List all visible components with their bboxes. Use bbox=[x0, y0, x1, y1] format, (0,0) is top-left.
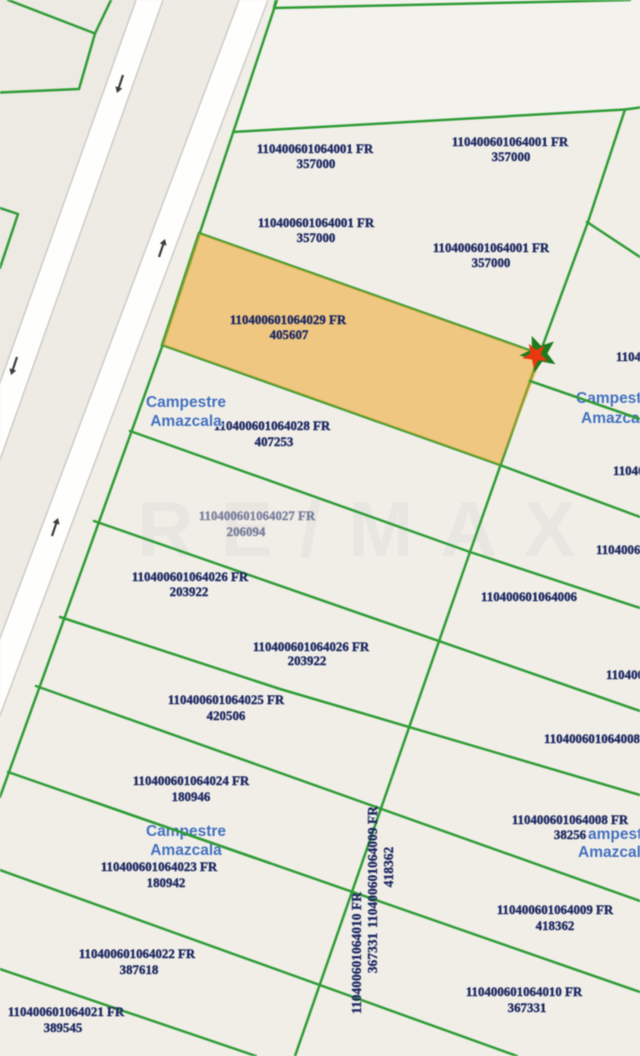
svg-text:Amazcala: Amazcala bbox=[578, 844, 640, 861]
svg-text:110400601064006: 110400601064006 bbox=[481, 590, 578, 604]
svg-text:110400601064021 FR: 110400601064021 FR bbox=[8, 1005, 125, 1019]
svg-text:203922: 203922 bbox=[170, 585, 209, 599]
svg-text:110400601064001 FR: 110400601064001 FR bbox=[257, 142, 374, 156]
svg-text:1104006010: 1104006010 bbox=[606, 668, 640, 682]
svg-text:418362: 418362 bbox=[536, 919, 575, 933]
svg-text:110400601064025 FR: 110400601064025 FR bbox=[168, 693, 285, 707]
svg-text:389545: 389545 bbox=[44, 1021, 83, 1035]
svg-text:387618: 387618 bbox=[120, 963, 159, 977]
svg-text:38256: 38256 bbox=[554, 828, 587, 842]
svg-text:110400601064008 FR: 110400601064008 FR bbox=[544, 732, 640, 746]
svg-text:110400601064001 FR: 110400601064001 FR bbox=[258, 216, 375, 230]
svg-text:110400601064001 FR: 110400601064001 FR bbox=[452, 135, 569, 149]
svg-text:367331: 367331 bbox=[508, 1001, 547, 1015]
svg-text:405607: 405607 bbox=[270, 328, 309, 342]
svg-text:357000: 357000 bbox=[472, 256, 511, 270]
svg-text:Campestre: Campestre bbox=[146, 394, 226, 411]
svg-text:110400601064023 FR: 110400601064023 FR bbox=[101, 860, 218, 874]
svg-text:Campestre: Campestre bbox=[576, 390, 640, 407]
svg-text:110400601064: 110400601064 bbox=[596, 543, 640, 557]
svg-text:110400601064010 FR: 110400601064010 FR bbox=[349, 892, 364, 1014]
svg-text:420506: 420506 bbox=[207, 709, 246, 723]
svg-text:180946: 180946 bbox=[172, 790, 211, 804]
svg-text:367331: 367331 bbox=[365, 933, 380, 974]
svg-text:357000: 357000 bbox=[297, 231, 336, 245]
svg-text:110400601064009 FR: 110400601064009 FR bbox=[365, 806, 380, 928]
svg-text:11040060106: 11040060106 bbox=[613, 464, 640, 478]
svg-text:110400601064026 FR: 110400601064026 FR bbox=[253, 640, 370, 654]
svg-text:110400601064027 FR: 110400601064027 FR bbox=[199, 509, 316, 523]
svg-text:110400601064028 FR: 110400601064028 FR bbox=[214, 419, 331, 433]
svg-text:Amazcala: Amazcala bbox=[581, 410, 640, 427]
svg-text:418362: 418362 bbox=[381, 847, 396, 888]
svg-text:110400601064001 FR: 110400601064001 FR bbox=[433, 241, 550, 255]
svg-text:ampestre: ampestre bbox=[588, 826, 640, 843]
svg-text:110400601064029 FR: 110400601064029 FR bbox=[230, 313, 347, 327]
svg-text:110400601064026 FR: 110400601064026 FR bbox=[132, 570, 249, 584]
svg-text:Amazcala: Amazcala bbox=[150, 842, 222, 859]
svg-text:110400601064024 FR: 110400601064024 FR bbox=[133, 774, 250, 788]
svg-text:203922: 203922 bbox=[288, 654, 327, 668]
svg-text:110400601064008 FR: 110400601064008 FR bbox=[512, 813, 629, 827]
svg-text:206094: 206094 bbox=[227, 525, 266, 539]
svg-text:Campestre: Campestre bbox=[146, 823, 226, 840]
svg-text:110400601064022 FR: 110400601064022 FR bbox=[79, 947, 196, 961]
svg-text:110400601064010 FR: 110400601064010 FR bbox=[466, 985, 583, 999]
svg-text:110400601064009 FR: 110400601064009 FR bbox=[497, 903, 614, 917]
svg-text:357000: 357000 bbox=[492, 150, 531, 164]
svg-text:1104006010: 1104006010 bbox=[616, 350, 640, 364]
svg-text:357000: 357000 bbox=[297, 157, 336, 171]
svg-text:Amazcala: Amazcala bbox=[150, 413, 222, 430]
svg-text:180942: 180942 bbox=[147, 876, 186, 890]
svg-text:407253: 407253 bbox=[255, 435, 294, 449]
